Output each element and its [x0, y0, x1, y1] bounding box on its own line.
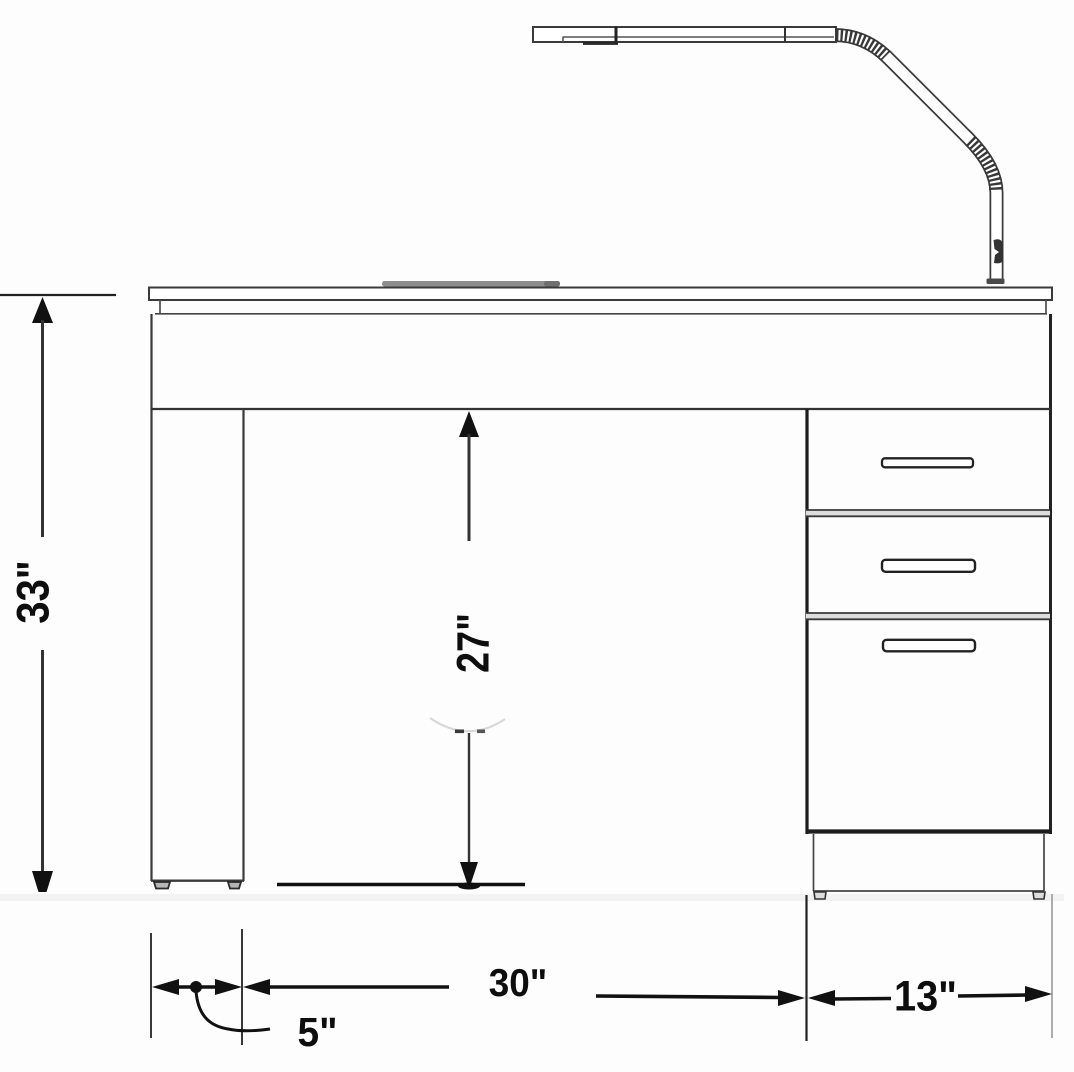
svg-text:27": 27" [448, 613, 499, 673]
svg-text:5": 5" [298, 1009, 338, 1055]
svg-text:33": 33" [8, 560, 59, 624]
svg-text:30": 30" [489, 962, 548, 1005]
svg-text:13": 13" [894, 973, 957, 1021]
